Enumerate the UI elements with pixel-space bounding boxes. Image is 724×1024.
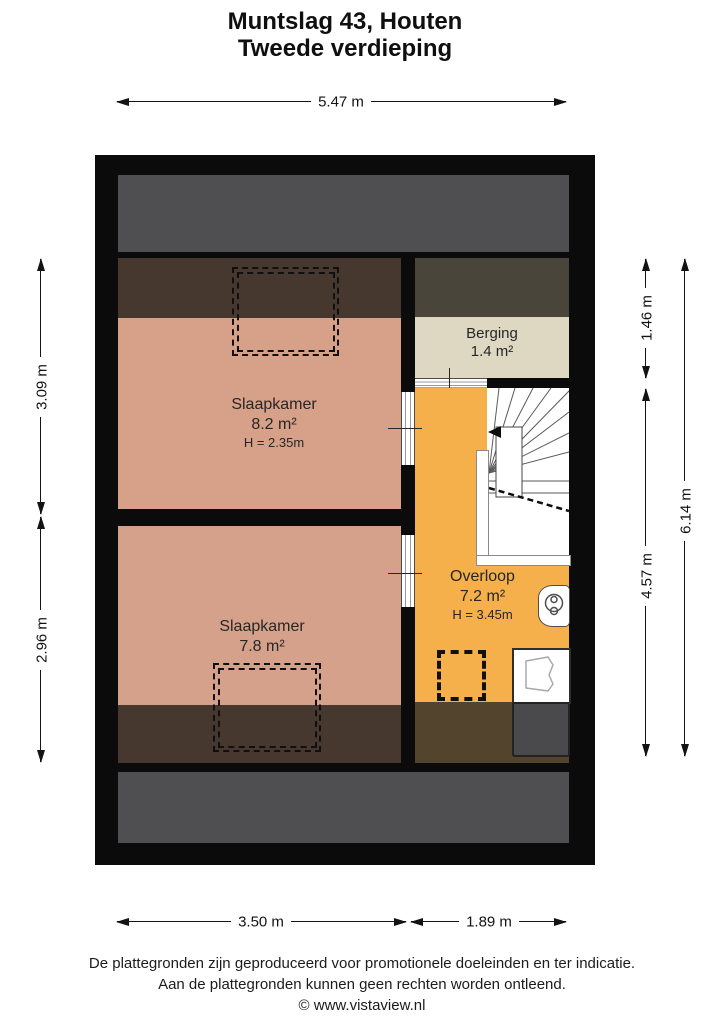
room-label-berging: Berging 1.4 m² [415, 325, 569, 361]
stairs-icon [487, 388, 569, 563]
berging-area: 1.4 m² [415, 343, 569, 361]
page-title-address: Muntslag 43, Houten [95, 8, 595, 35]
stair-rail [476, 450, 489, 565]
berging-name: Berging [415, 325, 569, 343]
berging-door [415, 378, 487, 388]
disclaimer-line1: De plattegronden zijn geproduceerd voor … [0, 953, 724, 974]
roof-window-icon [437, 650, 486, 701]
stairs-drawing [487, 388, 569, 563]
floorplan-page: Muntslag 43, Houten Tweede verdieping 5.… [0, 0, 724, 1024]
overloop-ceiling-height: H = 3.45m [415, 607, 550, 623]
page-title: Muntslag 43, Houten Tweede verdieping [95, 8, 595, 62]
overloop-area: 7.2 m² [415, 587, 550, 607]
dimension-right-total-label: 6.14 m [676, 481, 695, 541]
dimension-right-middle: 4.57 m [645, 389, 646, 756]
sink-icon [512, 648, 571, 704]
bedroom2-door [401, 535, 415, 607]
dimension-left-top-label: 3.09 m [32, 357, 51, 417]
room-label-overloop: Overloop 7.2 m² H = 3.45m [415, 567, 550, 623]
room-label-bedroom1: Slaapkamer 8.2 m² H = 2.35m [194, 395, 354, 451]
dimension-right-top: 1.46 m [645, 259, 646, 378]
dimension-left-bottom: 2.96 m [40, 517, 41, 762]
bedroom1-ceiling-height: H = 2.35m [194, 435, 354, 451]
dimension-bottom-right-label: 1.89 m [459, 912, 519, 931]
roof-window-icon [232, 267, 339, 356]
sink-drawing [514, 650, 569, 702]
dimension-left-bottom-label: 2.96 m [32, 610, 51, 670]
disclaimer: De plattegronden zijn geproduceerd voor … [0, 953, 724, 1016]
bedroom2-name: Slaapkamer [182, 617, 342, 637]
dimension-bottom-left: 3.50 m [117, 921, 406, 922]
bedroom1-name: Slaapkamer [194, 395, 354, 415]
dimension-left-top: 3.09 m [40, 259, 41, 514]
copyright: © www.vistaview.nl [0, 995, 724, 1016]
bedroom1-area: 8.2 m² [194, 415, 354, 435]
dimension-bottom-left-label: 3.50 m [231, 912, 291, 931]
room-label-bedroom2: Slaapkamer 7.8 m² [182, 617, 342, 657]
roof-slope-top [118, 175, 569, 252]
overloop-name: Overloop [415, 567, 550, 587]
dimension-right-total: 6.14 m [684, 259, 685, 756]
bedroom2-area: 7.8 m² [182, 637, 342, 657]
page-title-floor: Tweede verdieping [95, 35, 595, 62]
stair-landing-edge [476, 555, 571, 566]
floorplan: Slaapkamer 8.2 m² H = 2.35m Slaapkamer 7… [95, 155, 595, 865]
disclaimer-line2: Aan de plattegronden kunnen geen rechten… [0, 974, 724, 995]
roof-slope-bottom [118, 772, 569, 843]
dimension-right-middle-label: 4.57 m [637, 546, 656, 606]
bedroom1-door-tick [388, 428, 422, 429]
dimension-width-total-label: 5.47 m [311, 92, 371, 111]
cabinet-icon [512, 702, 570, 757]
dimension-bottom-right: 1.89 m [411, 921, 566, 922]
berging-low-headroom [415, 258, 569, 317]
roof-window-icon [213, 663, 321, 752]
dimension-right-top-label: 1.46 m [637, 288, 656, 348]
dimension-width-total: 5.47 m [117, 101, 566, 102]
